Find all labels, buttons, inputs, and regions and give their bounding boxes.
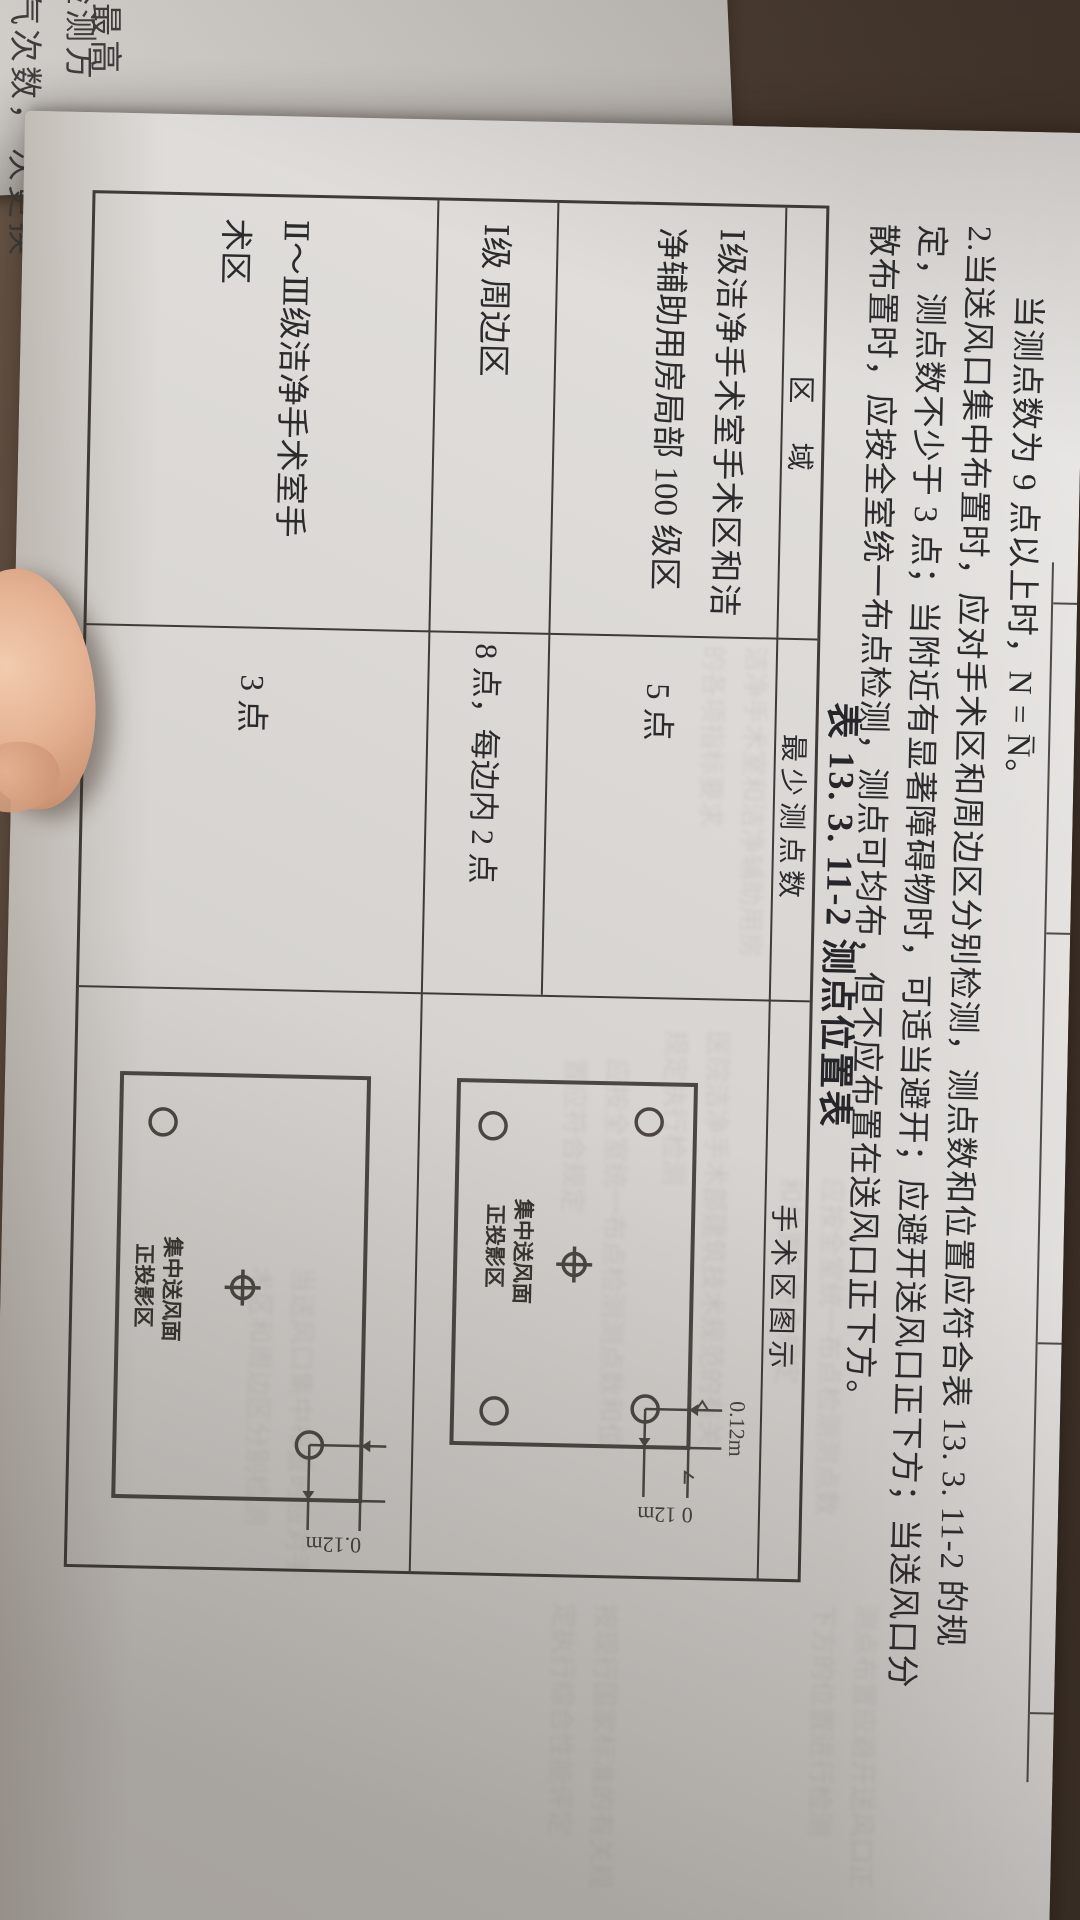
measure-point-circle (150, 1109, 177, 1136)
bleed-through-noise: 按现行国家标准的有关规定执行综合性能评定 (536, 1602, 626, 1904)
cell-region-row2: Ⅰ级 周边区 (430, 200, 559, 632)
measure-point-circle (481, 1398, 508, 1425)
book-photo: 气次数， 检测方 次更换 别最高 当测点数为 9 点以上时，N = N̅。 2.… (0, 0, 1080, 1920)
bleed-through-noise: 医院洁净手术部建筑技术规范的有关规定执行检测 (645, 1029, 738, 1461)
header-min-points: 最少测点数 (771, 638, 818, 1001)
cell-points-row2: 8 点，每边内 2 点 (423, 630, 551, 994)
bleed-through-noise: 应按全室统一布点检测测点数和位置应符合规定 (762, 1177, 854, 1539)
air-supply-label-line1: 集中送风面 (509, 1198, 535, 1304)
clipped-table-line (1030, 1712, 1054, 1715)
adjacent-text-fragment: 别最高 (84, 0, 132, 77)
clipped-table-line (1046, 932, 1070, 935)
clipped-table-line (1038, 1342, 1062, 1345)
bleed-through-noise: 测点布置应避开送风口正下方的位置进行检测 (796, 1602, 886, 1904)
air-supply-label-line2: 正投影区 (482, 1204, 508, 1288)
dimension-label: 0 12m (637, 1502, 693, 1528)
book-page: 当测点数为 9 点以上时，N = N̅。 2.当送风口集中布置时，应对手术区和周… (0, 111, 1080, 1920)
air-supply-label-line2: 正投影区 (131, 1243, 157, 1327)
clipped-table-line (1053, 602, 1077, 605)
note-line-1: 当测点数为 9 点以上时，N = N̅。 (997, 294, 1055, 793)
bleed-through-noise: 洁净手术室和洁净辅助用房的各项指标要求 (685, 645, 776, 977)
bleed-through-noise: 应按全室统一布点检测测点数和位置应符合规定 (545, 1057, 637, 1449)
cell-region-row1: Ⅰ级洁净手术室手术区和洁净辅助用房局部 100 级区 (550, 203, 787, 638)
measure-point-circle (480, 1113, 507, 1140)
cell-points-row3: 3 点 (75, 623, 431, 992)
air-supply-label-line1: 集中送风面 (158, 1235, 184, 1341)
bleed-through-noise: 当送风口集中布置时应对手术区和周边区分别检测 (232, 1265, 323, 1587)
cell-region-row3: Ⅱ～Ⅲ级洁净手术室手术区 (83, 193, 440, 630)
